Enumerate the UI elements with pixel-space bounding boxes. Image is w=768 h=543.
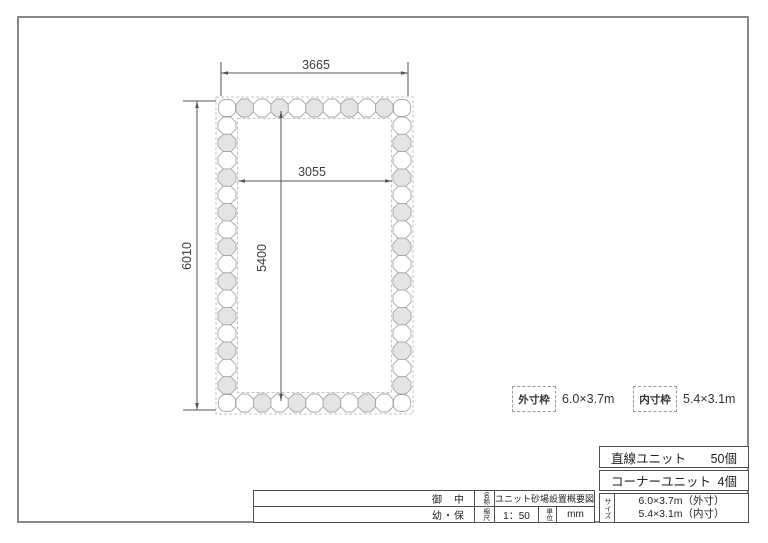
dashed-boundaries bbox=[216, 97, 413, 414]
client-sub-label: 幼・保 bbox=[432, 507, 465, 522]
client-sub-field: 幼・保 bbox=[254, 507, 474, 522]
straight-unit-qty: 50個 bbox=[711, 448, 737, 467]
inner-frame-legend-box: 内寸枠 bbox=[633, 386, 677, 412]
drawing-sheet: 3665 3055 6010 5400 外寸枠 6.0×3.7m 内寸枠 5.4… bbox=[0, 0, 768, 543]
dim-outer-width-label: 3665 bbox=[302, 58, 330, 72]
outer-frame-legend-label: 外寸枠 bbox=[518, 392, 550, 407]
parts-table-row-straight: 直線ユニット 50個 bbox=[599, 446, 749, 468]
sandbox-unit-ring bbox=[218, 99, 411, 412]
scale-value-cell: 1：50 bbox=[494, 507, 538, 522]
size-inner-line: 5.4×3.1m（内寸） bbox=[638, 508, 724, 521]
outer-frame-size-value: 6.0×3.7m bbox=[562, 386, 614, 412]
client-suffix: 御 中 bbox=[432, 491, 465, 506]
dim-inner-width-label: 3055 bbox=[298, 165, 326, 179]
drawing-name-cell: ユニット砂場設置概要図 bbox=[494, 491, 594, 506]
size-outer-line: 6.0×3.7m（外寸） bbox=[638, 495, 724, 508]
straight-unit-label: 直線ユニット bbox=[611, 448, 686, 467]
size-header: サイズ bbox=[600, 494, 615, 522]
unit-value-cell: mm bbox=[556, 507, 594, 522]
inner-frame-legend-label: 内寸枠 bbox=[639, 392, 671, 407]
title-block: 御 中 名称 ユニット砂場設置概要図 幼・保 縮尺 1：50 単位 mm bbox=[253, 490, 595, 523]
client-field: 御 中 bbox=[254, 491, 474, 506]
corner-unit-label: コーナーユニット bbox=[611, 471, 711, 490]
parts-table-row-corner: コーナーユニット 4個 bbox=[599, 470, 749, 491]
parts-table-row-size: サイズ 6.0×3.7m（外寸） 5.4×3.1m（内寸） bbox=[599, 493, 749, 523]
scale-label-cell: 縮尺 bbox=[474, 507, 494, 522]
inner-frame-size-value: 5.4×3.1m bbox=[683, 386, 735, 412]
unit-label-cell: 単位 bbox=[538, 507, 556, 522]
dim-inner-height-label: 5400 bbox=[255, 244, 269, 272]
corner-unit-qty: 4個 bbox=[718, 471, 737, 490]
name-label-cell: 名称 bbox=[474, 491, 494, 506]
outer-frame-legend-box: 外寸枠 bbox=[512, 386, 556, 412]
dim-outer-height-label: 6010 bbox=[180, 242, 194, 270]
